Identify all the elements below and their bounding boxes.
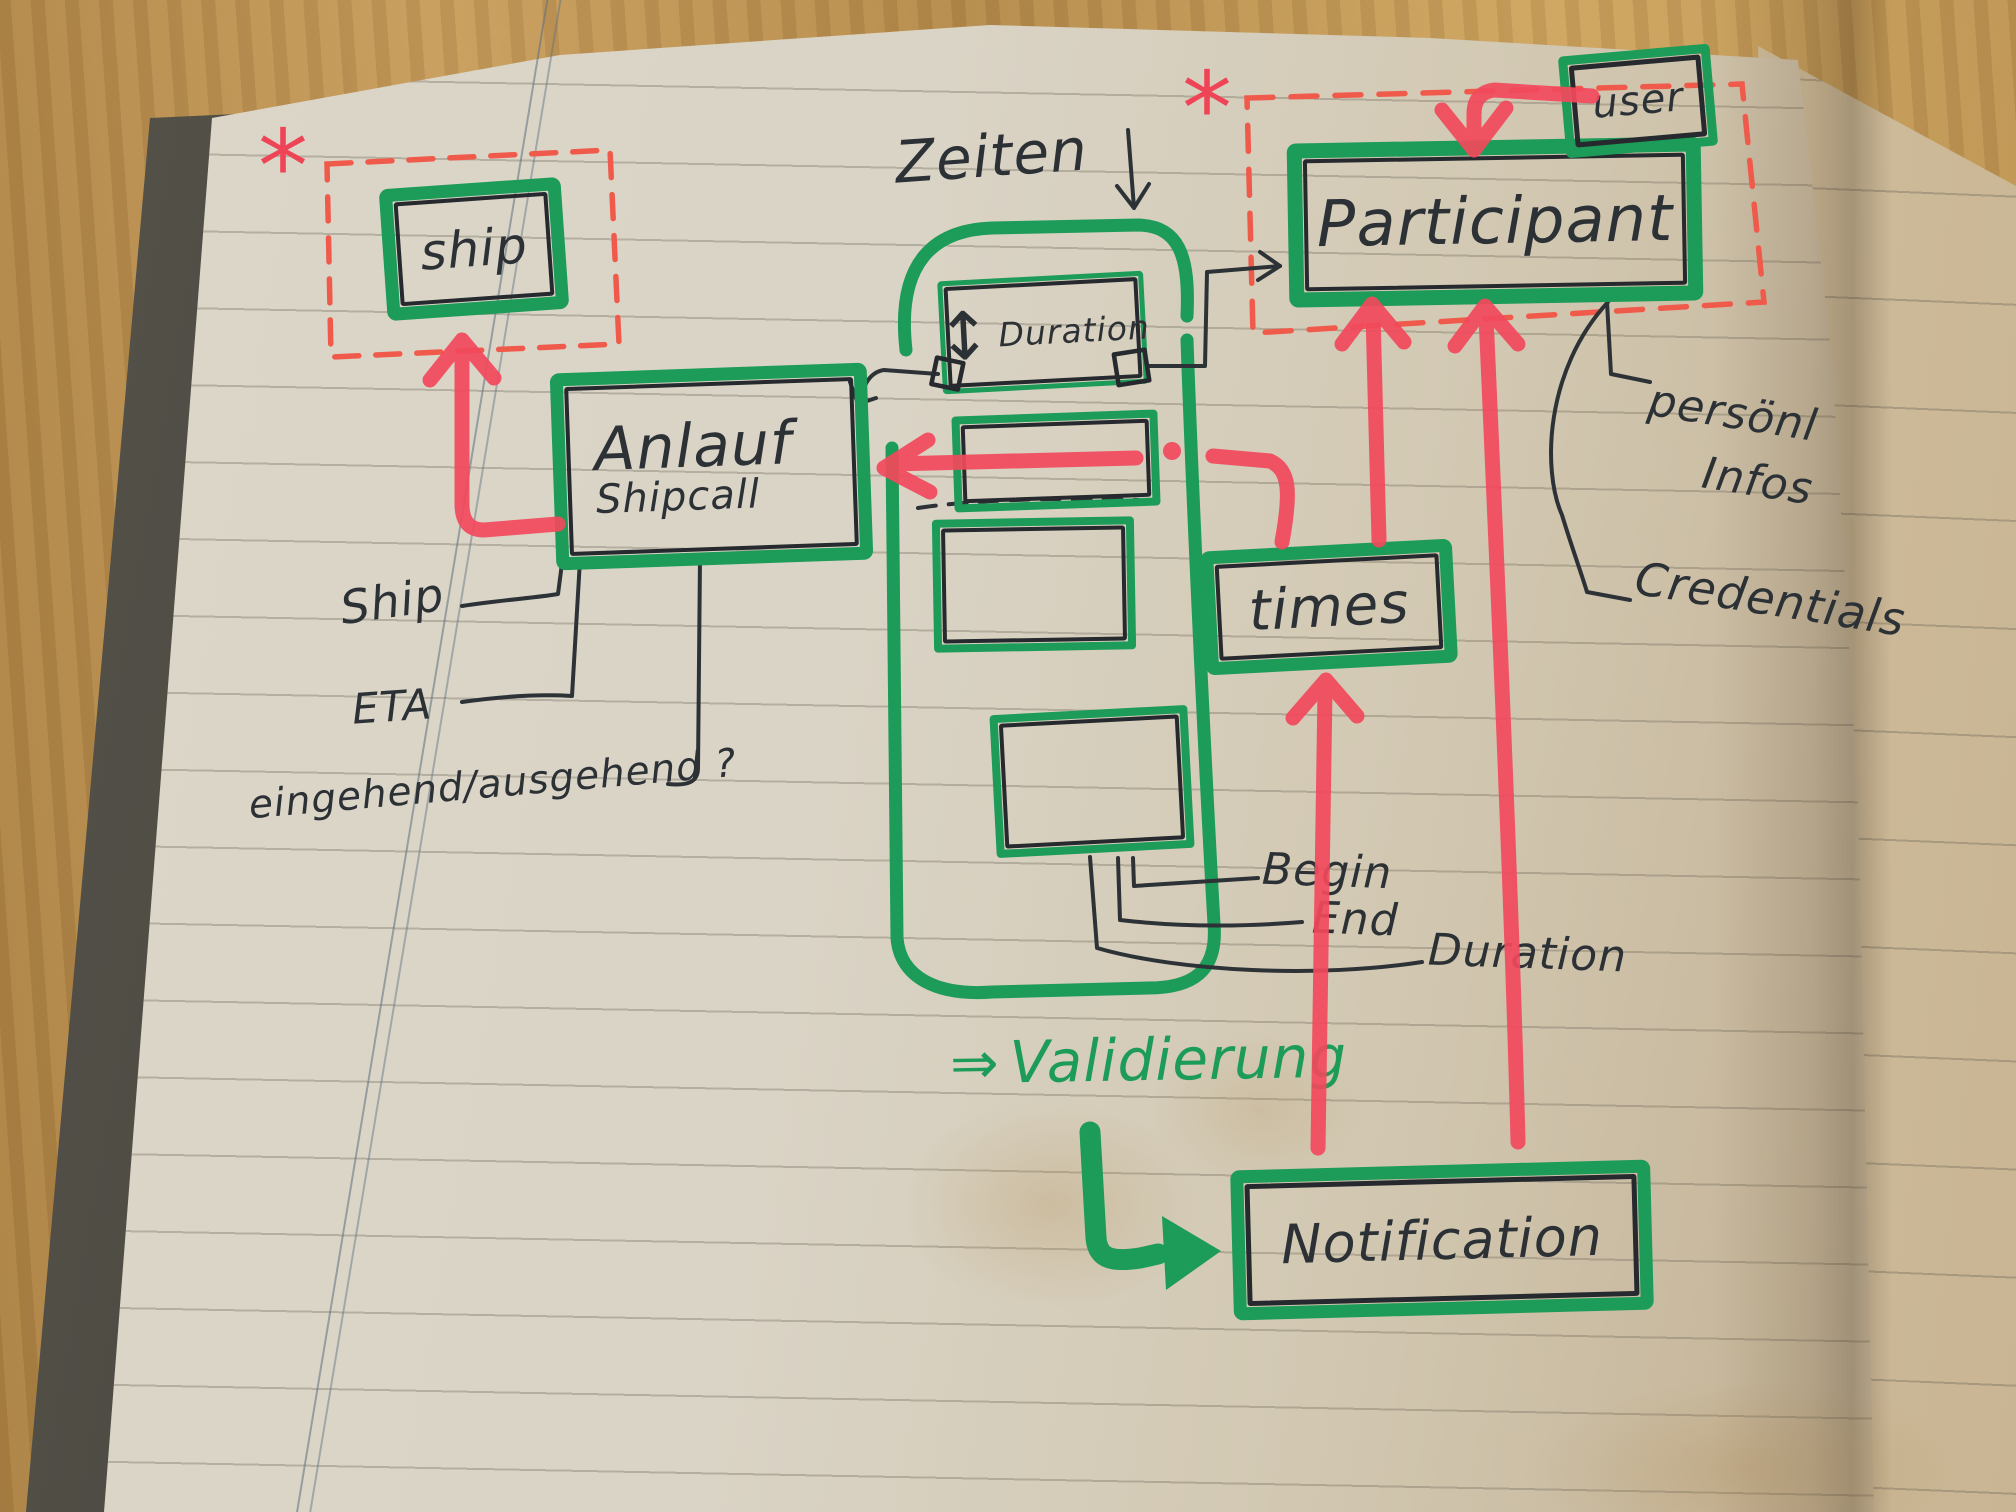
node-duration: ↕ Duration [937,271,1149,395]
validierung-implies-arrow-icon: ⇒ [949,1029,1000,1098]
node-participant-inner: Participant [1303,153,1687,292]
node-times: times [1200,538,1458,675]
node-duration-label: Duration [998,307,1151,354]
node-participant-label: Participant [1316,182,1674,262]
node-ship: ship [379,177,570,321]
node-anlauf-subtitle: Shipcall [595,473,760,521]
node-notification-label: Notification [1280,1204,1603,1275]
duration-updown-arrow-icon: ↕ [934,297,994,377]
attr-eta-label: ETA [350,679,433,733]
node-ship-label: ship [418,216,529,281]
attr-end-label: End [1311,893,1399,947]
node-anlauf-title: Anlauf [593,414,793,479]
node-notification: Notification [1230,1160,1654,1321]
timeslot-box-1 [951,409,1160,512]
page-crease-shadow [1712,0,1892,1512]
validierung-annotation: ⇒Validierung [949,1023,1347,1098]
node-anlauf-inner: Anlauf Shipcall [564,377,859,556]
required-asterisk-participant: * [1182,50,1233,167]
node-user: user [1558,44,1718,159]
validierung-text: Validierung [1009,1023,1348,1097]
attr-begin-label: Begin [1261,844,1393,900]
attr-duration-label: Duration [1427,925,1628,983]
node-times-inner: times [1215,553,1444,661]
node-participant: Participant [1287,136,1704,307]
node-user-inner: user [1569,54,1708,147]
timeslot-box-3 [989,705,1194,858]
timeslot-box-2 [932,516,1136,653]
node-duration-inner: ↕ Duration [943,277,1142,388]
node-notification-inner: Notification [1244,1174,1639,1306]
timeslot-box-1-inner [961,419,1152,504]
required-asterisk-ship: * [258,108,309,225]
zeiten-text: Zeiten [893,115,1090,196]
node-anlauf: Anlauf Shipcall [550,363,874,571]
notebook-photo: ship Anlauf Shipcall ↕ Duration times Pa… [0,0,2016,1512]
timeslot-box-3-inner [999,714,1185,848]
node-times-label: times [1247,570,1411,643]
node-user-label: user [1591,74,1686,128]
node-ship-inner: ship [394,192,555,306]
timeslot-box-2-inner [941,525,1127,643]
zeiten-annotation: Zeiten [893,115,1090,196]
